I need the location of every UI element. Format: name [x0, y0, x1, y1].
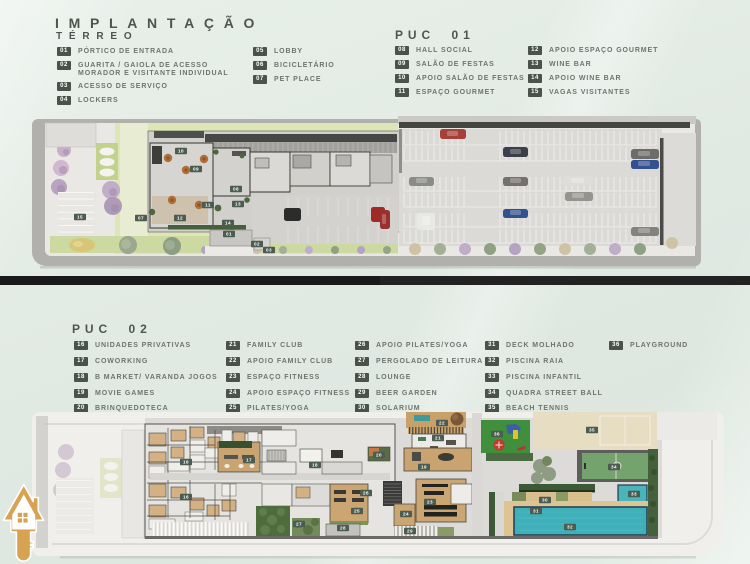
svg-text:29: 29 [407, 529, 413, 534]
svg-text:23: 23 [427, 500, 433, 505]
svg-text:26: 26 [363, 491, 369, 496]
svg-text:34: 34 [611, 465, 617, 470]
svg-text:14: 14 [225, 221, 231, 226]
svg-text:18: 18 [312, 463, 318, 468]
svg-text:32: 32 [567, 525, 573, 530]
svg-text:33: 33 [631, 492, 637, 497]
svg-text:30: 30 [542, 498, 548, 503]
svg-text:28: 28 [340, 526, 346, 531]
svg-text:24: 24 [403, 512, 409, 517]
svg-text:22: 22 [439, 421, 445, 426]
svg-text:21: 21 [435, 436, 441, 441]
svg-text:17: 17 [246, 458, 252, 463]
svg-text:10: 10 [178, 149, 184, 154]
svg-text:31: 31 [533, 509, 539, 514]
svg-text:19: 19 [421, 465, 427, 470]
svg-text:27: 27 [296, 522, 302, 527]
svg-text:15: 15 [77, 215, 83, 220]
svg-text:12: 12 [177, 216, 183, 221]
svg-text:25: 25 [354, 509, 360, 514]
svg-text:09: 09 [193, 167, 199, 172]
svg-text:35: 35 [589, 428, 595, 433]
svg-text:03: 03 [266, 248, 272, 253]
svg-text:01: 01 [226, 232, 232, 237]
svg-text:08: 08 [233, 187, 239, 192]
svg-text:13: 13 [235, 202, 241, 207]
svg-text:16: 16 [183, 460, 189, 465]
svg-text:16: 16 [183, 495, 189, 500]
svg-text:11: 11 [205, 203, 211, 208]
svg-text:20: 20 [376, 453, 382, 458]
svg-text:36: 36 [494, 432, 500, 437]
svg-text:07: 07 [138, 216, 144, 221]
svg-text:02: 02 [254, 242, 260, 247]
